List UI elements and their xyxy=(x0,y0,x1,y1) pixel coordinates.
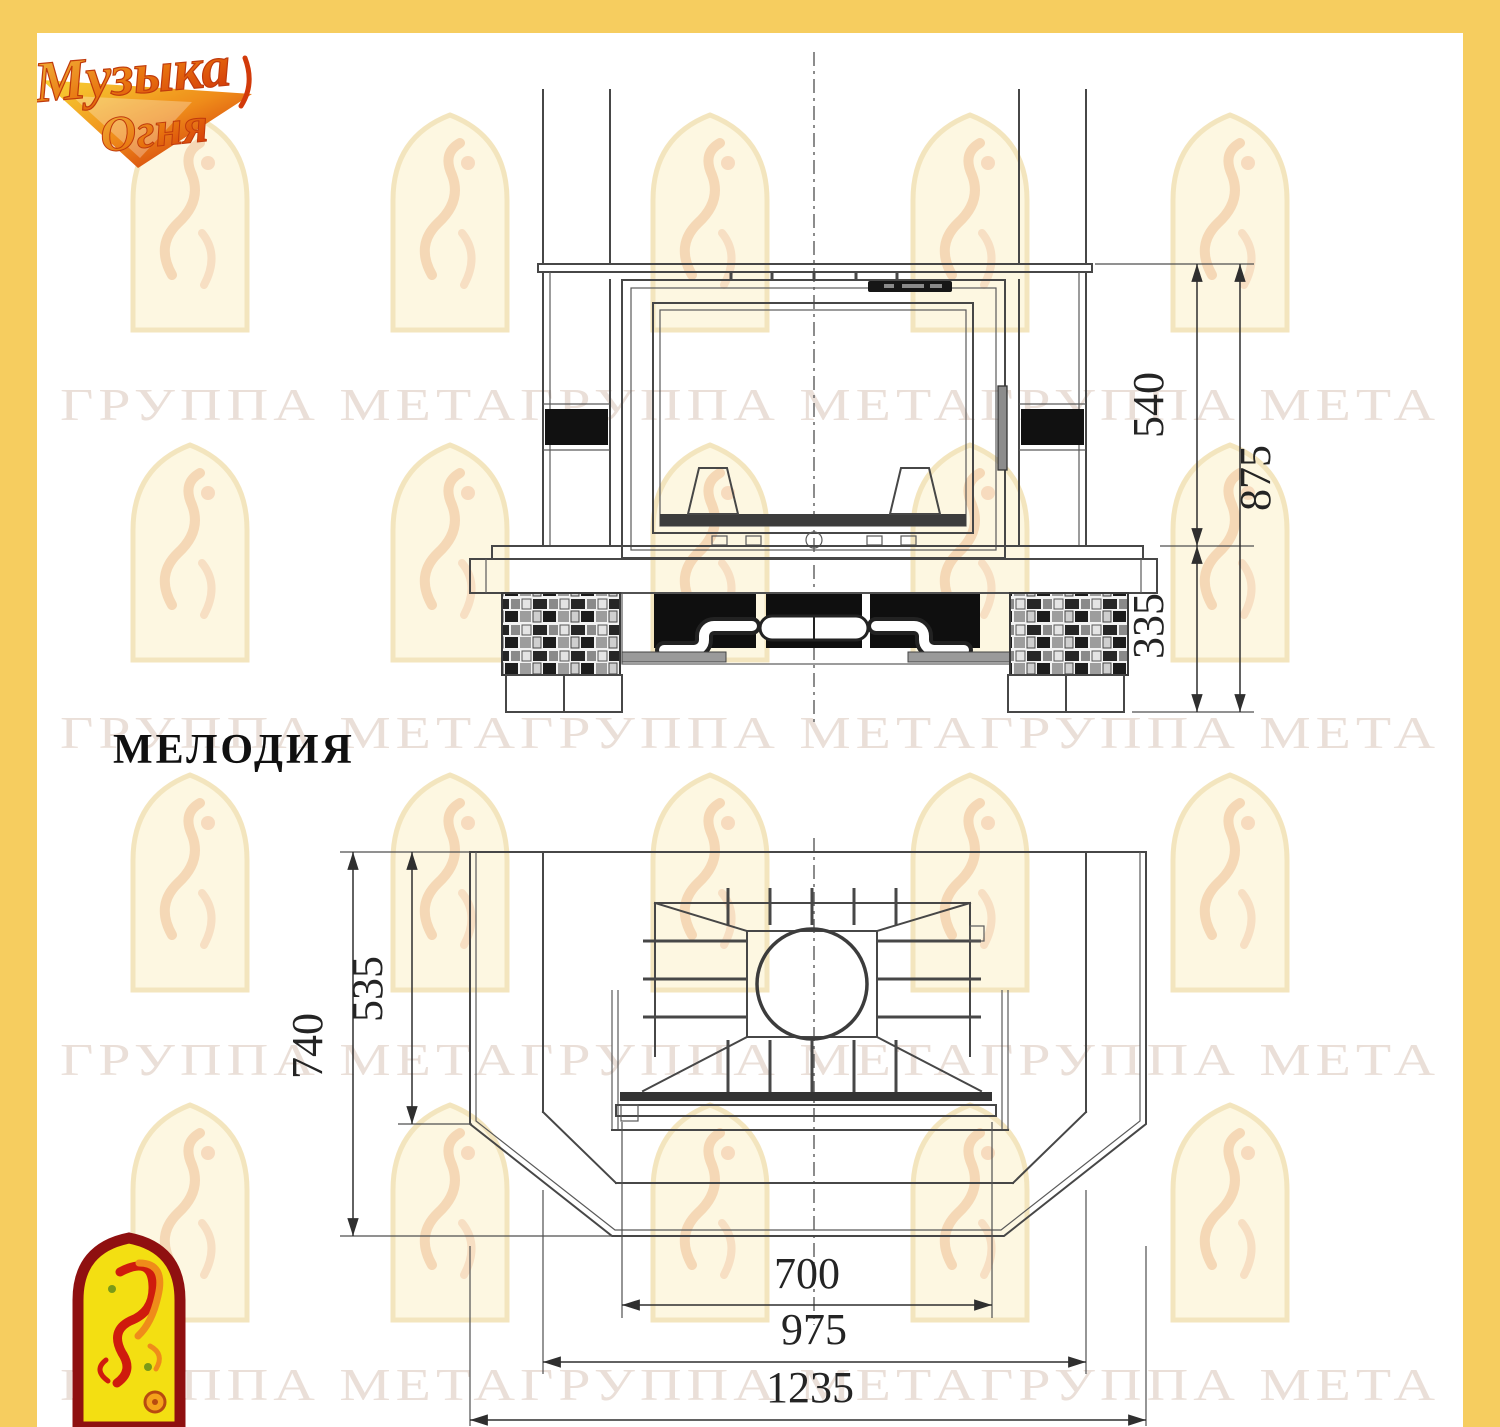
dim-width-firebox: 700 xyxy=(774,1249,840,1298)
dim-firebox-height: 540 xyxy=(1124,372,1173,438)
dim-width-total: 1235 xyxy=(766,1363,854,1412)
frame-left xyxy=(0,0,37,1427)
frame-right xyxy=(1463,0,1500,1427)
door-sill-bar xyxy=(660,514,966,526)
flue-outlet-circle xyxy=(757,929,867,1039)
page: ГРУППА МЕТАГРУППА МЕТАГРУППА МЕТА ГРУППА… xyxy=(0,0,1500,1427)
base-ledge-left xyxy=(622,652,726,662)
dim-depth-front: 535 xyxy=(343,956,392,1022)
firebox-front-bar xyxy=(620,1092,992,1101)
watermark-text: ГРУППА МЕТАГРУППА МЕТАГРУППА МЕТА xyxy=(60,379,1440,430)
logo-word-2: Огня xyxy=(97,96,210,163)
column-accent-band xyxy=(545,409,608,445)
dim-base-height: 335 xyxy=(1124,593,1173,659)
column-accent-band xyxy=(1021,409,1084,445)
frame-top xyxy=(0,0,1500,33)
base-section xyxy=(502,593,1128,712)
door-handle xyxy=(998,386,1007,470)
technical-drawing: ГРУППА МЕТАГРУППА МЕТАГРУППА МЕТА ГРУППА… xyxy=(0,0,1500,1427)
dim-depth-total: 740 xyxy=(283,1013,332,1079)
dim-total-height: 875 xyxy=(1231,445,1280,511)
dim-width-portal: 975 xyxy=(781,1305,847,1354)
mosaic-pillar-right xyxy=(1010,593,1128,675)
mosaic-pillar-left xyxy=(502,593,620,675)
arch-emblem-logo xyxy=(78,1238,180,1427)
page-title: МЕЛОДИЯ xyxy=(113,727,355,773)
watermark-text: ГРУППА МЕТАГРУППА МЕТАГРУППА МЕТА xyxy=(60,1034,1440,1085)
watermark-text: ГРУППА МЕТАГРУППА МЕТАГРУППА МЕТА xyxy=(60,1359,1440,1410)
base-ledge-right xyxy=(908,652,1012,662)
